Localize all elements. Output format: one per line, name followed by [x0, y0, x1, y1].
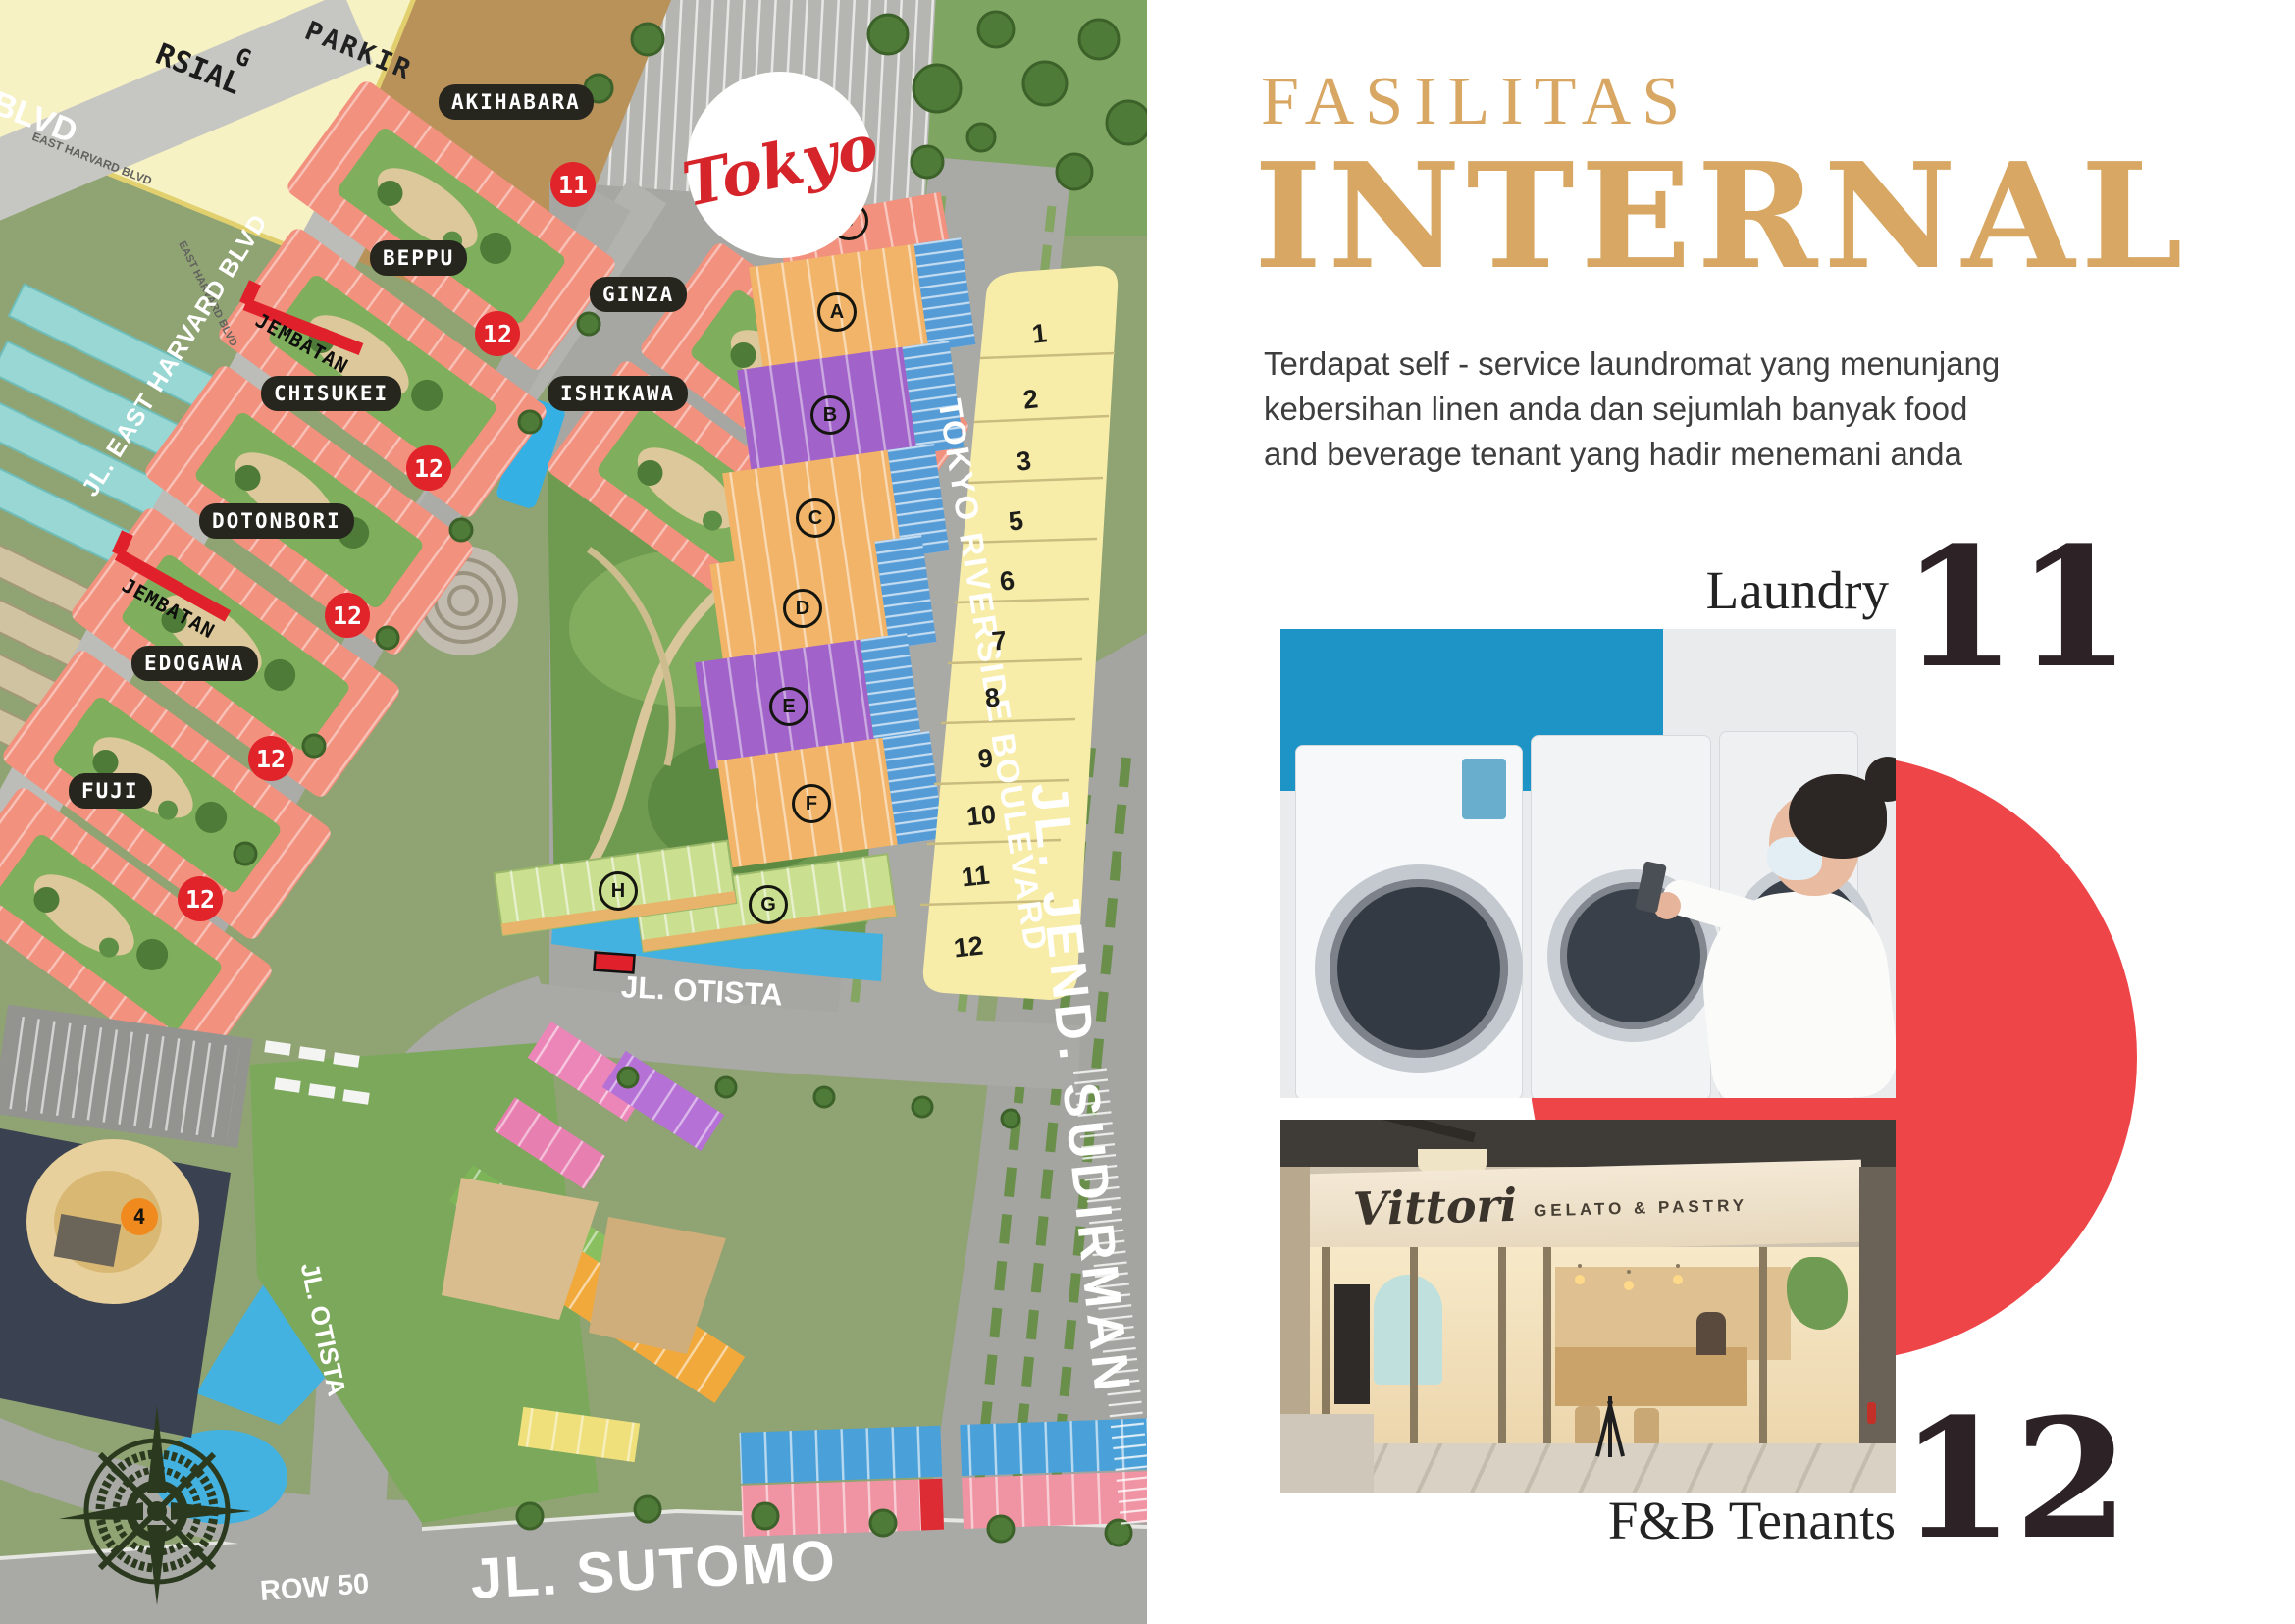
cluster-label-ginza: GINZA [590, 277, 687, 312]
poster-arch [1374, 1275, 1442, 1385]
tripod-leg-3 [1608, 1396, 1612, 1457]
glass-frame-3 [1498, 1247, 1506, 1443]
block-letter-a: A [817, 292, 857, 332]
panel-description-line3: and beverage tenant yang hadir menemani … [1264, 436, 1962, 473]
block-letter-f: F [792, 784, 831, 823]
fnb-heading: F&B Tenants [1474, 1490, 1896, 1551]
map-badge-12-c: 12 [325, 593, 370, 638]
cluster-label-fuji: FUJI [69, 773, 152, 809]
map-badge-4: 4 [121, 1198, 158, 1235]
block-letter-b: B [810, 395, 850, 435]
map-badge-12-e: 12 [178, 876, 223, 921]
cluster-label-ishikawa: ISHIKAWA [548, 376, 688, 411]
washing-machine-1-door-icon [1315, 864, 1523, 1073]
cluster-label-dotonbori: DOTONBORI [199, 503, 354, 539]
panel-description-line2: kebersihan linen anda dan sejumlah banya… [1264, 391, 1967, 428]
lot-number-10: 10 [965, 800, 997, 833]
map-badge-12-b: 12 [406, 445, 451, 491]
menu-stand [1334, 1284, 1370, 1404]
pendant-light-2 [1624, 1281, 1634, 1290]
stool-1 [1575, 1406, 1600, 1447]
block-letter-c: C [796, 498, 835, 538]
lot-number-9: 9 [976, 743, 994, 774]
tokyo-logo: Tokyo [687, 72, 873, 258]
cluster-label-edogawa: EDOGAWA [131, 646, 258, 681]
laundry-number: 11 [1902, 530, 2131, 687]
pendant-light-1 [1575, 1275, 1585, 1284]
cluster-label-chisukei: CHISUKEI [261, 376, 401, 411]
vittori-sign-name: Vittori [1352, 1179, 1518, 1235]
lot-number-5: 5 [1007, 505, 1024, 537]
block-letter-d: D [783, 589, 822, 628]
map-badge-11: 11 [550, 162, 596, 207]
tokyo-logo-text: Tokyo [676, 109, 884, 220]
map-badge-12-a: 12 [475, 311, 520, 356]
block-letter-g: G [749, 885, 788, 924]
lot-number-7: 7 [990, 625, 1008, 656]
cluster-label-beppu: BEPPU [370, 240, 467, 276]
laundry-photo [1280, 629, 1896, 1098]
panel-title-line2: INTERNAL [1254, 143, 2189, 288]
lot-number-8: 8 [983, 682, 1001, 713]
fire-extinguisher [1867, 1402, 1876, 1424]
panel-description-line1: Terdapat self - service laundromat yang … [1264, 345, 2000, 383]
glass-frame-5 [1759, 1247, 1767, 1443]
washing-machine-1-screen [1462, 759, 1506, 819]
site-map: Tokyo AKIHABARA BEPPU GINZA CHISUKEI ISH… [0, 0, 1147, 1624]
lot-number-6: 6 [998, 565, 1016, 597]
map-badge-12-d: 12 [248, 736, 293, 781]
block-letter-e: E [769, 687, 808, 726]
block-letter-h: H [599, 871, 638, 911]
pendant-light-3 [1673, 1275, 1683, 1284]
counter [1555, 1347, 1747, 1406]
fnb-number: 12 [1900, 1401, 2129, 1558]
ceiling [1280, 1120, 1896, 1167]
glass-frame-4 [1543, 1247, 1551, 1443]
lot-number-1: 1 [1030, 318, 1048, 349]
glass-frame-2 [1410, 1247, 1418, 1443]
laundry-heading: Laundry [1565, 559, 1889, 621]
stool-2 [1634, 1408, 1659, 1447]
panel-title-line1: FASILITAS [1261, 63, 1691, 141]
cluster-label-akihabara: AKIHABARA [439, 84, 594, 120]
exterior-floor [1280, 1414, 1374, 1493]
lot-number-12: 12 [952, 931, 984, 965]
signboard: Vittori GELATO & PASTRY [1307, 1160, 1863, 1257]
lot-number-2: 2 [1021, 384, 1039, 415]
fnb-photo: Vittori GELATO & PASTRY [1280, 1120, 1896, 1493]
vittori-sign-sub: GELATO & PASTRY [1534, 1196, 1747, 1222]
lot-number-3: 3 [1015, 445, 1032, 477]
barista [1696, 1312, 1726, 1355]
lot-number-11: 11 [960, 861, 991, 894]
